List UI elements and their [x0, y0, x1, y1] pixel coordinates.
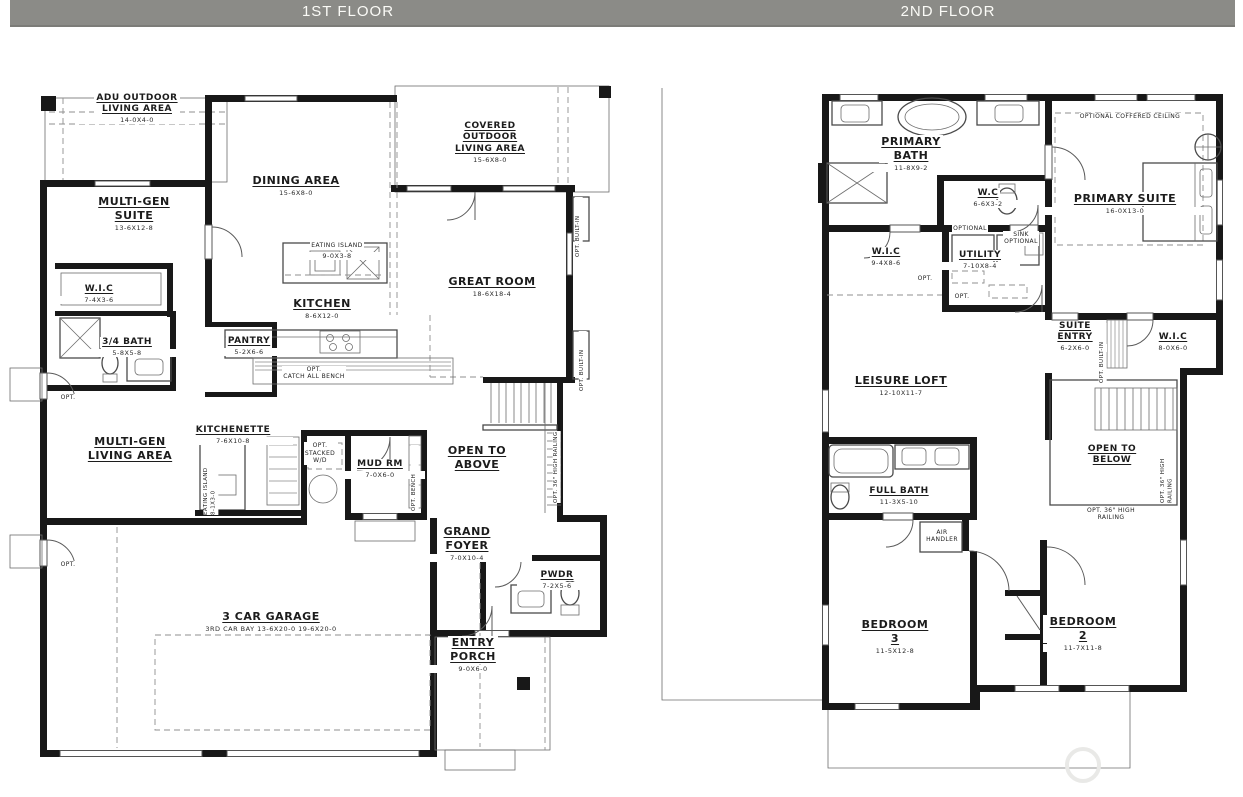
open-to-below-staircase — [1050, 380, 1177, 505]
room-label-primary-suite: PRIMARY SUITE 16-0X13-0 — [1045, 187, 1205, 215]
floor-plan-sheet: 1ST FLOOR 2ND FLOOR — [0, 0, 1243, 797]
label-stacked-wd: OPT. STACKED W/D — [300, 442, 340, 467]
label-opt-1: OPT. — [53, 384, 83, 404]
label-opt-builtin: OPT. BUILT-IN — [1099, 323, 1107, 383]
appliance-icon — [309, 475, 337, 503]
label-opt-a: OPT. — [910, 265, 940, 285]
sink-icon — [935, 448, 959, 465]
sink-icon — [902, 448, 926, 465]
room-label-entry-porch: ENTRY PORCH 9-0X6-0 — [408, 636, 538, 673]
room-label-garage: 3 CAR GARAGE 3RD CAR BAY 13-6X20-0 19-6X… — [171, 605, 371, 633]
label-air-handler: AIR HANDLER — [925, 526, 959, 546]
label-opt-railing: OPT. 36" HIGH RAILING — [553, 431, 561, 503]
label-opt-railing-vertical: OPT. 36" HIGH RAILING — [1160, 435, 1175, 503]
watermark-circle — [1067, 749, 1099, 781]
room-label-three-quarter-bath: 3/4 BATH 5-8X5-8 — [77, 329, 177, 357]
sink-icon — [127, 353, 171, 381]
second-floor-plan: PRIMARY BATH 11-8X9-2 W.C 6-6X3-2 OPTION… — [655, 85, 1243, 797]
suite-entry-builtin — [1107, 320, 1127, 368]
label-opt-builtin-lower: OPT. BUILT-IN — [579, 331, 587, 391]
room-label-grand-foyer: GRAND FOYER 7-0X10-4 — [402, 525, 532, 562]
label-catch-all-bench: OPT. CATCH ALL BENCH — [269, 363, 359, 383]
room-label-powder: PWDR 7-2X5-6 — [517, 562, 597, 590]
room-label-full-bath: FULL BATH 11-3X5-10 — [859, 478, 939, 506]
room-label-pantry: PANTRY 5-2X6-6 — [209, 328, 289, 356]
label-opt-b: OPT. — [947, 283, 977, 303]
room-label-kitchenette: KITCHENETTE 7-6X10-8 — [173, 417, 293, 445]
first-floor-plan: ADU OUTDOOR LIVING AREA 14-0X4-0 MULTI-G… — [5, 85, 625, 785]
room-label-wic-b: W.I.C 8-0X6-0 — [1143, 324, 1203, 352]
room-label-dining: DINING AREA 15-6X8-0 — [231, 169, 361, 197]
label-open-to-above: OPEN TO ABOVE — [412, 444, 542, 473]
room-label-wc: W.C 6-6X3-2 — [958, 180, 1018, 208]
label-opt-railing-horizontal: OPT. 36" HIGH RAILING — [1073, 504, 1149, 524]
room-label-multigen-suite: MULTI-GEN SUITE 13-6X12-8 — [69, 195, 199, 232]
room-label-multigen-living: MULTI-GEN LIVING AREA — [70, 435, 190, 464]
first-floor-title: 1ST FLOOR — [268, 3, 428, 20]
sink-icon — [841, 105, 869, 122]
room-label-wic: W.I.C 7-4X3-6 — [54, 276, 144, 304]
room-label-primary-bath: PRIMARY BATH 11-8X9-2 — [851, 135, 971, 172]
label-optional: OPTIONAL — [940, 215, 1000, 235]
label-coffered-ceiling: OPTIONAL COFFERED CEILING — [1050, 103, 1210, 123]
label-eating-island: EATING ISLAND 9-0X3-8 — [292, 232, 382, 260]
room-label-suite-entry: SUITE ENTRY 6-2X6-0 — [1043, 321, 1107, 352]
room-label-leisure-loft: LEISURE LOFT 12-10X11-7 — [841, 369, 961, 397]
door-swings — [47, 192, 521, 636]
label-opt-2: OPT. — [53, 551, 83, 571]
room-label-adu-outdoor: ADU OUTDOOR LIVING AREA 14-0X4-0 — [77, 93, 197, 124]
room-label-wic-a: W.I.C 9-4X8-6 — [846, 239, 926, 267]
label-open-to-below: OPEN TO BELOW — [1080, 444, 1144, 467]
label-opt-builtin-upper: OPT. BUILT-IN — [575, 197, 583, 257]
room-label-covered-outdoor: COVERED OUTDOOR LIVING AREA 15-6X8-0 — [425, 121, 555, 164]
room-label-bedroom-2: BEDROOM 2 11-7X11-8 — [1043, 615, 1123, 652]
room-label-kitchen: KITCHEN 8-6X12-0 — [257, 292, 387, 320]
primary-suite-features — [1055, 113, 1221, 245]
coffered-ceiling-outline — [1055, 113, 1203, 245]
room-label-great-room: GREAT ROOM 18-6X18-4 — [427, 270, 557, 298]
label-eating-island-vertical: EATING ISLAND 8-1X3-0 — [203, 445, 218, 515]
room-label-bedroom-3: BEDROOM 3 11-5X12-8 — [855, 618, 935, 655]
toilet-icon — [831, 485, 849, 509]
sink-icon — [995, 105, 1023, 122]
label-sink-optional: SINK OPTIONAL — [999, 228, 1043, 248]
second-floor-title: 2ND FLOOR — [868, 3, 1028, 20]
interior-walls — [818, 94, 1223, 703]
header-bar: 1ST FLOOR 2ND FLOOR — [10, 0, 1235, 27]
